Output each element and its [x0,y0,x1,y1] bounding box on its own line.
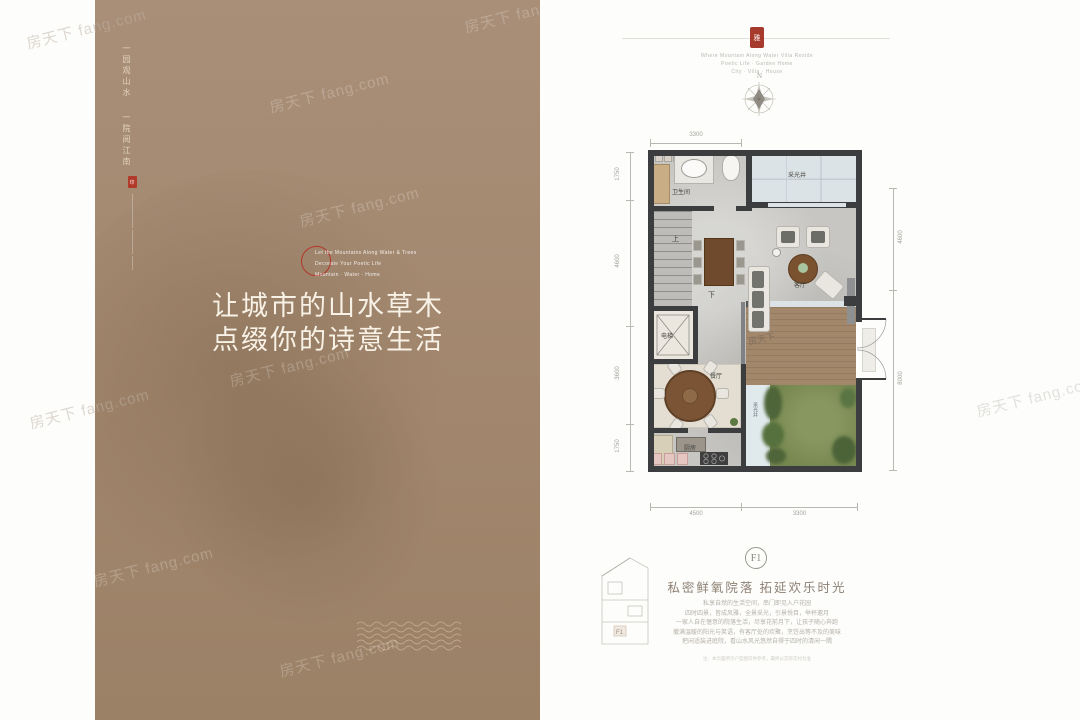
dim-left-4: 1750 [615,431,621,461]
label-elevator: 电梯 [661,331,673,340]
side-table [772,248,781,257]
dim-left-2: 4600 [615,246,621,276]
dim-left-3: 3600 [615,358,621,388]
dim-line-bottom [650,507,858,508]
red-seal-stamp-icon: 雅 [750,27,764,48]
dining-chair [693,240,702,251]
description-line: 把闲适装进庭院，看山水风光悠然自得于四时的清闲一隅 [672,638,842,648]
table-plant [798,263,808,273]
pantry-tile [664,453,675,465]
note-line-2: Decorate Your Poetic Life [315,261,381,267]
description-line: 一家人自在惬意的院落生活，尽享花前月下，让孩子随心奔跑 [672,619,842,629]
armchair-cushion [781,231,795,243]
label-skylight-top: 采光井 [788,170,806,179]
bush [764,386,782,420]
label-kitchen: 厨房 [684,443,696,452]
watermark: 房天下 fang.com [974,371,1080,421]
sofa-cushion [752,311,764,328]
unit-section-thumbnail: F1 [590,550,662,654]
sink [681,159,707,178]
description-line: 四时四景，皆成风雅，全景采光，引景悦目，举杯邀月 [672,610,842,620]
skylight-glazing [752,156,856,202]
lazy-susan [682,388,698,404]
dim-left-1: 1750 [615,159,621,189]
toilet [722,155,740,181]
bush [840,388,856,408]
dim-bottom-1: 4500 [650,511,742,517]
brush-lines-decoration [121,194,143,270]
stove-burners-icon [700,452,728,465]
note-line-1: Let the Mountains Along Water & Trees [315,250,417,256]
skylight-window-band [768,203,846,207]
dining-chair [693,274,702,285]
vertical-tagline-1: 一园观山水 [121,44,132,99]
bush [832,436,856,464]
dining-table-rect [704,238,734,286]
floor-plan: 房天下 卫生间 采光井 客厅 电梯 餐厅 厨房 采光井 上 下 [648,150,862,472]
double-door-swing-icon [856,318,896,380]
label-skylight-side: 采光井 [752,402,759,417]
label-stairs-up: 上 [672,234,679,244]
unit-title: 私密鲜氧院落 拓延欢乐时光 [657,577,857,596]
potted-plant [730,418,738,426]
dining-chair [736,257,745,268]
label-dining-room: 餐厅 [710,371,722,380]
label-living-room: 客厅 [794,280,806,289]
dim-top: 3300 [650,132,742,138]
compass-rose-icon: N [738,70,780,120]
vertical-tagline-column: 一园观山水 一院阅江南 印 [121,44,143,272]
headline-line-1: 让城市的山水草木 [178,289,478,323]
bath-cabinet [652,164,670,204]
bush [766,448,786,464]
sofa-cushion [752,291,764,308]
round-table-chair [716,388,729,399]
dim-bottom-2: 3300 [741,511,858,517]
unit-badge: F1 [745,547,767,569]
dining-chair [736,274,745,285]
red-seal-icon: 印 [128,176,137,188]
unit-description: 私享自然的生活空间，串门即见入户花园 四时四景，皆成风雅，全景采光，引景悦目，举… [672,600,842,648]
description-line: 私享自然的生活空间，串门即见入户花园 [672,600,842,610]
dim-line-top [650,143,742,144]
bush [762,422,784,448]
brochure-page: 一园观山水 一院阅江南 印 Let the Mountains Along Wa… [0,0,1080,720]
svg-text:N: N [757,72,762,80]
dining-chair [736,240,745,251]
dim-right-2: 8000 [898,363,904,393]
armchair-cushion [811,231,825,243]
label-bathroom: 卫生间 [672,187,690,196]
deck-door-frame [741,302,745,364]
background-blob [145,330,465,650]
dim-right-1: 4600 [898,222,904,252]
staircase [654,211,692,306]
vertical-tagline-2: 一院阅江南 [121,113,132,168]
dining-chair [693,257,702,268]
caption-line-2: Poetic Life · Garden Home [687,60,827,68]
label-stairs-down: 下 [708,290,715,300]
description-line: 撒满温暖的阳光与笑语，有客厅处的欢聚，烹饪出等不及的美味 [672,629,842,639]
pantry-tile [677,453,688,465]
sofa-cushion [752,271,764,288]
note-line-3: Mountain · Water · Home [315,272,380,278]
disclaimer: 注：本页面所示户型图仅供参考，最终以实际交付为准 [672,656,842,662]
caption-line-1: Where Mountain Along Water Villa Reside [687,52,827,60]
thumbnail-f1-label: F1 [616,630,624,636]
